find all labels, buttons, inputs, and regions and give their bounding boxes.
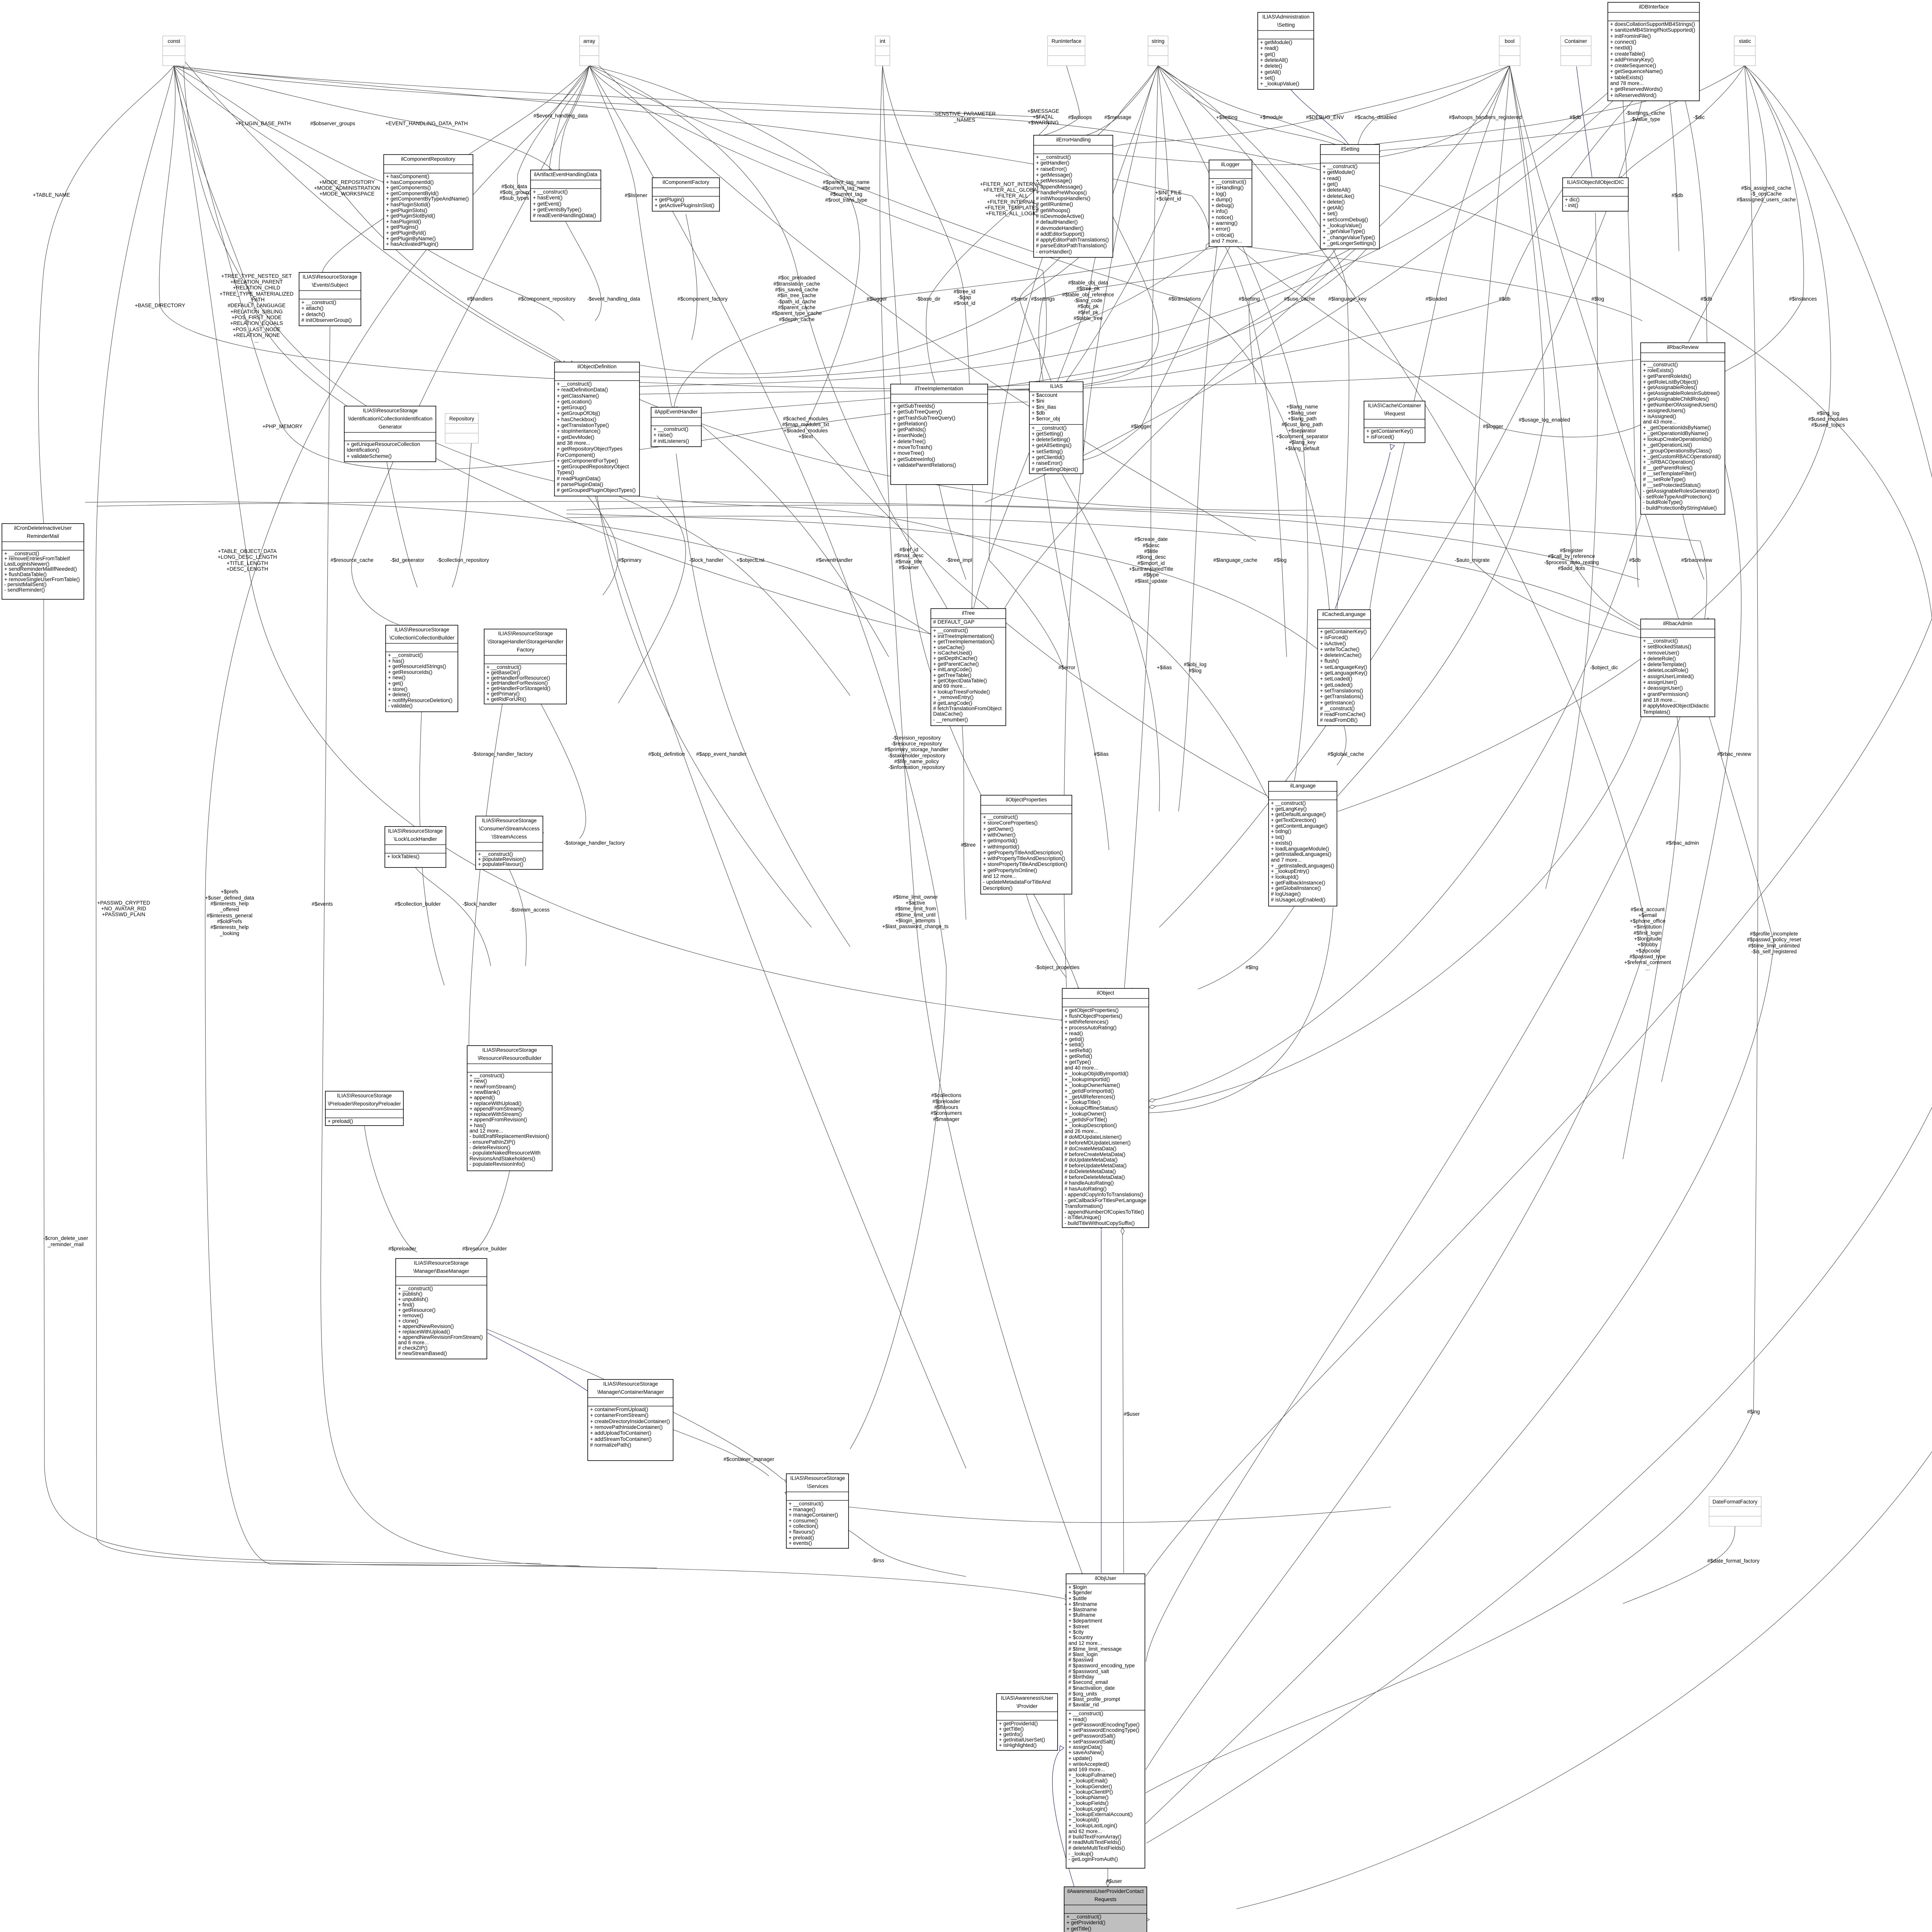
svg-text:+ getGroupOfObj(): + getGroupOfObj()	[557, 410, 600, 416]
svg-text:#$title: #$title	[1144, 548, 1158, 554]
svg-text:ilSetting: ilSetting	[1341, 146, 1359, 152]
svg-text:and 69 more...: and 69 more...	[933, 683, 967, 689]
svg-text:# devmodeHandler(): # devmodeHandler()	[1036, 225, 1083, 231]
svg-text:# $avatar_rid: # $avatar_rid	[1068, 1702, 1099, 1708]
svg-text:# parsePluginData(): # parsePluginData()	[557, 481, 603, 487]
svg-text:\Provider: \Provider	[1017, 1703, 1038, 1709]
svg-text:+ notice(): + notice()	[1211, 214, 1233, 220]
svg-text:#$is_saved_cache: #$is_saved_cache	[775, 287, 818, 293]
svg-text:- validate(): - validate()	[388, 703, 413, 709]
svg-text:+ getSequenceName(): + getSequenceName()	[1610, 68, 1663, 74]
svg-text:int: int	[880, 38, 886, 44]
svg-text:+ txtlng(): + txtlng()	[1271, 828, 1291, 834]
svg-text:+ getHandlerForStorageId(): + getHandlerForStorageId()	[486, 685, 550, 691]
svg-text:# $birthday: # $birthday	[1068, 1674, 1094, 1680]
svg-text:+ getGroupedRepositoryObject: + getGroupedRepositoryObject	[557, 464, 629, 469]
svg-text:#$add_dots: #$add_dots	[1558, 565, 1585, 571]
svg-text:+ connect(): + connect()	[1610, 39, 1636, 45]
svg-text:+ getActivePluginsInSlot(): + getActivePluginsInSlot()	[655, 202, 714, 208]
svg-text:+MODE_ADMINISTRATION: +MODE_ADMINISTRATION	[314, 185, 380, 191]
svg-text:#$parent_cache: #$parent_cache	[778, 304, 816, 310]
svg-text:ilObjectProperties: ilObjectProperties	[1006, 797, 1047, 803]
svg-text:+ _lookupFields(): + _lookupFields()	[1068, 1800, 1109, 1806]
svg-text:#$cust_lang_path: #$cust_lang_path	[1282, 422, 1323, 427]
svg-text:DateFormatFactory: DateFormatFactory	[1713, 1499, 1758, 1505]
svg-text:\Services: \Services	[807, 1483, 828, 1489]
svg-text:+ getTextDirection(): + getTextDirection()	[1271, 817, 1316, 823]
svg-text:# buildTextFromArray(): # buildTextFromArray()	[1068, 1834, 1121, 1840]
svg-text:+ getEvent(): + getEvent()	[533, 201, 561, 207]
svg-text:#$log: #$log	[1274, 557, 1286, 563]
svg-text:+ __construct(): + __construct()	[1643, 362, 1678, 367]
svg-text:+$INI_FILE: +$INI_FILE	[1155, 190, 1182, 196]
svg-text:#$file_name_policy: #$file_name_policy	[894, 759, 939, 764]
svg-text:#$depth_cache: #$depth_cache	[779, 316, 815, 322]
svg-text:+ getModule(): + getModule()	[1323, 169, 1355, 175]
svg-text:+ getTranslations(): + getTranslations()	[1320, 694, 1363, 699]
svg-text:# __construct(): # __construct()	[1320, 706, 1355, 711]
svg-text:ILIAS\ResourceStorage: ILIAS\ResourceStorage	[498, 631, 553, 636]
svg-text:+ getClassName(): + getClassName()	[557, 393, 599, 399]
svg-text:#$date_format_factory: #$date_format_factory	[1707, 1558, 1759, 1564]
svg-text:+ getSubTreeIds(): + getSubTreeIds()	[893, 403, 935, 409]
svg-text:+$lang_user: +$lang_user	[1288, 410, 1317, 416]
svg-text:# parseEditorPathTranslation(): # parseEditorPathTranslation()	[1036, 243, 1107, 248]
svg-text:+ setBlockedStatus(): + setBlockedStatus()	[1643, 644, 1691, 650]
svg-text:#$logger: #$logger	[1131, 423, 1151, 429]
svg-text:#$owner: #$owner	[899, 565, 919, 570]
svg-text:+ _getAllReferences(): + _getAllReferences()	[1065, 1094, 1115, 1100]
svg-text:#$language_key: #$language_key	[1328, 296, 1366, 302]
svg-text:+ getUniqueResourceCollection: + getUniqueResourceCollection	[347, 441, 420, 447]
svg-text:+ __construct(): + __construct()	[557, 381, 592, 387]
svg-text:- appendCopyInfoToTranslations: - appendCopyInfoToTranslations()	[1065, 1192, 1143, 1197]
svg-text:+ getObjectDataTable(): + getObjectDataTable()	[933, 678, 987, 684]
svg-text:+ _lookupObjIdByImportId(): + _lookupObjIdByImportId()	[1065, 1071, 1128, 1077]
svg-text:+ _getOperationIdByName(): + _getOperationIdByName()	[1643, 430, 1708, 436]
svg-text:-$resource_repository: -$resource_repository	[891, 741, 942, 747]
svg-text:+$hobby: +$hobby	[1638, 942, 1658, 947]
svg-text:string: string	[1151, 38, 1164, 44]
svg-text:# readFromDB(): # readFromDB()	[1320, 717, 1358, 723]
svg-text:+ deleteTree(): + deleteTree()	[893, 439, 926, 444]
svg-text:+FILTER_ALL: +FILTER_ALL	[995, 193, 1028, 199]
svg-text:+ raiseError(): + raiseError()	[1032, 460, 1063, 466]
svg-text:ilCachedLanguage: ilCachedLanguage	[1322, 611, 1366, 617]
svg-text:and 38 more...: and 38 more...	[557, 440, 590, 446]
svg-text:#$lng: #$lng	[1747, 1409, 1760, 1415]
svg-text:+ _lookupOwner(): + _lookupOwner()	[1065, 1111, 1106, 1117]
svg-text:+ containerFromUpload(): + containerFromUpload()	[590, 1406, 648, 1412]
svg-text:+ $account: + $account	[1032, 392, 1058, 398]
svg-text:- isTitleUnique(): - isTitleUnique()	[1065, 1214, 1101, 1220]
svg-text:+ read(): + read()	[1065, 1031, 1083, 1036]
svg-text:+ isHandling(): + isHandling()	[1211, 185, 1244, 190]
svg-text:+ deleteTemplate(): + deleteTemplate()	[1643, 662, 1686, 667]
svg-text:#$usage_log_enabled: #$usage_log_enabled	[1519, 417, 1570, 423]
svg-text:+$lang_default: +$lang_default	[1285, 446, 1320, 451]
svg-text:+ validateScheme(): + validateScheme()	[347, 453, 392, 459]
svg-text:+ _lookupOwnerName(): + _lookupOwnerName()	[1065, 1082, 1120, 1088]
svg-text:+ raise(): + raise()	[653, 432, 673, 438]
svg-text:#$root_id: #$root_id	[954, 300, 975, 306]
svg-text:#$register: #$register	[1560, 548, 1583, 553]
svg-text:#$preloader: #$preloader	[932, 1099, 961, 1104]
svg-text:+RELATION_NONE: +RELATION_NONE	[233, 332, 280, 338]
svg-text:+ setLoaded(): + setLoaded()	[1320, 676, 1352, 682]
svg-text:#$observer_groups: #$observer_groups	[310, 121, 355, 126]
svg-text:ILIAS\Awareness\User: ILIAS\Awareness\User	[1001, 1695, 1053, 1701]
svg-text:# readPluginData(): # readPluginData()	[557, 476, 600, 481]
svg-text:+ get(): + get()	[1323, 181, 1338, 187]
svg-text:+ getProviderId(): + getProviderId()	[1066, 1920, 1105, 1925]
svg-text:and 7 more...: and 7 more...	[1271, 857, 1302, 863]
svg-text:#$ext_account: #$ext_account	[1631, 906, 1665, 912]
svg-text:+PASSWD_CRYPTED: +PASSWD_CRYPTED	[97, 900, 150, 906]
svg-text:+ createDirectoryInsideContain: + createDirectoryInsideContainer()	[590, 1418, 670, 1424]
svg-text:+ getId(): + getId()	[1065, 1036, 1084, 1042]
svg-text:+ stopInheritance(): + stopInheritance()	[557, 428, 600, 434]
svg-text:+ withImportId(): + withImportId()	[983, 844, 1019, 850]
svg-text:ilArtifactEventHandlingData: ilArtifactEventHandlingData	[534, 172, 598, 177]
svg-text:+ $fullname: + $fullname	[1068, 1612, 1095, 1618]
svg-text:ilTreeImplementation: ilTreeImplementation	[915, 386, 963, 391]
svg-text:+DESC_LENGTH: +DESC_LENGTH	[226, 566, 268, 572]
svg-text:# normalizePath(): # normalizePath()	[590, 1442, 631, 1448]
svg-text:#$instances: #$instances	[1789, 296, 1817, 302]
svg-text:+$separator: +$separator	[1288, 428, 1316, 434]
svg-text:#$obj_pk: #$obj_pk	[1078, 303, 1099, 309]
svg-text:Identification(): Identification()	[347, 447, 379, 453]
svg-text:#$resource_cache: #$resource_cache	[330, 557, 373, 563]
svg-text:+ manage(): + manage()	[789, 1507, 815, 1512]
svg-text:+$longitude: +$longitude	[1634, 936, 1661, 942]
svg-text:#$lng_log: #$lng_log	[1817, 410, 1840, 416]
svg-text:+ appendFromRevision(): + appendFromRevision()	[469, 1117, 527, 1122]
svg-text:+ flush(): + flush()	[1320, 658, 1339, 664]
svg-text:#$current_tag_name: #$current_tag_name	[822, 185, 871, 191]
svg-text:+ setLanguageKey(): + setLanguageKey()	[1320, 664, 1367, 670]
svg-text:+ lookupCreateOperationIds(): + lookupCreateOperationIds()	[1643, 436, 1712, 442]
svg-text:+ __construct(): + __construct()	[1211, 179, 1246, 185]
svg-text:+ _isRBACOperation(): + _isRBACOperation()	[1643, 459, 1695, 465]
svg-text:Description(): Description()	[983, 885, 1013, 891]
svg-text:+ getAllSettings(): + getAllSettings()	[1032, 442, 1071, 448]
svg-text:+ store(): + store()	[388, 686, 408, 692]
svg-text:+ getComponentByTypeAndName(): + getComponentByTypeAndName()	[386, 196, 469, 202]
svg-text:ilLanguage: ilLanguage	[1290, 783, 1316, 789]
svg-text:+ set(): + set()	[1323, 211, 1338, 216]
svg-text:+ __construct(): + __construct()	[933, 628, 968, 633]
svg-text:# doUpdateMetaData(): # doUpdateMetaData()	[1065, 1157, 1117, 1163]
svg-text:#$obj_log: #$obj_log	[1184, 662, 1207, 667]
svg-text:+$referral_comment: +$referral_comment	[1624, 959, 1671, 965]
svg-text:#$db: #$db	[1499, 296, 1510, 302]
svg-text:#$oldPrefs: #$oldPrefs	[217, 918, 242, 924]
svg-text:# doMDUpdateListener(): # doMDUpdateListener()	[1065, 1134, 1122, 1140]
svg-text:# isUsageLogEnabled(): # isUsageLogEnabled()	[1271, 897, 1325, 903]
svg-text:#$log: #$log	[1189, 668, 1201, 673]
svg-text:and 12 more...: and 12 more...	[983, 873, 1017, 879]
svg-text:# DEFAULT_GAP: # DEFAULT_GAP	[933, 619, 975, 625]
svg-text:+ getResource(): + getResource()	[398, 1307, 435, 1313]
svg-text:- _lookup(): - _lookup()	[1068, 1851, 1094, 1857]
svg-text:+FILTER_ALL_GLOBAL: +FILTER_ALL_GLOBAL	[983, 187, 1040, 193]
svg-text:+ publish(): + publish()	[398, 1291, 422, 1297]
svg-text:#$cache_disabled: #$cache_disabled	[1355, 114, 1397, 120]
svg-text:# $second_email: # $second_email	[1068, 1679, 1108, 1685]
svg-text:+ __construct(): + __construct()	[1271, 800, 1306, 806]
svg-text:+ withReferences(): + withReferences()	[1065, 1019, 1109, 1025]
svg-text:+ deassignUser(): + deassignUser()	[1643, 685, 1683, 691]
svg-text:#$table_obj_reference: #$table_obj_reference	[1062, 292, 1114, 298]
svg-text:# doDeleteMetaData(): # doDeleteMetaData()	[1065, 1168, 1116, 1174]
svg-text:+ processAutoRating(): + processAutoRating()	[1065, 1025, 1117, 1031]
svg-text:+ doesCollationSupportMB4Strin: + doesCollationSupportMB4Strings()	[1610, 21, 1695, 27]
svg-text:+ update(): + update()	[1068, 1755, 1092, 1761]
svg-text:+ nextId(): + nextId()	[1610, 45, 1632, 51]
svg-text:-$storage_handler_factory: -$storage_handler_factory	[564, 840, 625, 846]
svg-text:#$current_tag: #$current_tag	[830, 191, 862, 197]
svg-text:# __setRoleType(): # __setRoleType()	[1643, 476, 1685, 482]
svg-text:+ read(): + read()	[1068, 1716, 1087, 1722]
svg-text:+ getSubTreeQuery(): + getSubTreeQuery()	[893, 409, 942, 415]
svg-text:#$obj_data: #$obj_data	[502, 184, 527, 189]
svg-text:+ readDefinitionData(): + readDefinitionData()	[557, 387, 608, 393]
svg-text:+ getSetting(): + getSetting()	[1032, 431, 1063, 437]
svg-text:\Manager\ContainerManager: \Manager\ContainerManager	[597, 1389, 664, 1395]
svg-text:#$first_login: #$first_login	[1634, 930, 1662, 936]
svg-text:+ saveAsNew(): + saveAsNew()	[1068, 1750, 1104, 1755]
svg-text:+ getPathIds(): + getPathIds()	[893, 427, 926, 432]
svg-text:# getGroupedPluginObjectTypes(: # getGroupedPluginObjectTypes()	[557, 487, 636, 493]
svg-text:-$tree_impl: -$tree_impl	[946, 557, 972, 563]
svg-text:_offered: _offered	[219, 906, 239, 912]
svg-text:\Events\Subject: \Events\Subject	[312, 282, 348, 288]
svg-text:-$value_type: -$value_type	[1630, 116, 1660, 122]
svg-text:-$collection_repository: -$collection_repository	[437, 557, 489, 563]
svg-text:+$comment_separator: +$comment_separator	[1276, 434, 1328, 439]
svg-text:+ deleteLike(): + deleteLike()	[1323, 193, 1354, 199]
svg-text:+ lookupTreesForNode(): + lookupTreesForNode()	[933, 689, 990, 695]
svg-text:+ getBaseDir(): + getBaseDir()	[486, 670, 520, 675]
svg-text:+ _lookupEmail(): + _lookupEmail()	[1068, 1778, 1108, 1784]
svg-text:# $org_units: # $org_units	[1068, 1691, 1097, 1697]
svg-text:# initListeners(): # initListeners()	[653, 438, 689, 444]
svg-text:#$used_modules: #$used_modules	[1808, 416, 1848, 422]
svg-text:+ __construct(): + __construct()	[486, 664, 521, 670]
svg-text:# __setTemplateFilter(): # __setTemplateFilter()	[1643, 471, 1696, 476]
svg-text:+ $ini_ilias: + $ini_ilias	[1032, 404, 1056, 410]
svg-text:ilLogger: ilLogger	[1221, 162, 1240, 167]
svg-text:...: ...	[1645, 966, 1650, 971]
svg-text:+ addPrimaryKey(): + addPrimaryKey()	[1610, 57, 1654, 63]
svg-text:ILIAS\ResourceStorage: ILIAS\ResourceStorage	[303, 274, 357, 280]
svg-text:+ _lookupTitle(): + _lookupTitle()	[1065, 1099, 1100, 1105]
svg-text:+ removeUser(): + removeUser()	[1643, 650, 1679, 656]
svg-text:-$cron_delete_user: -$cron_delete_user	[43, 1235, 88, 1241]
svg-text:Transformation(): Transformation()	[1065, 1203, 1103, 1209]
svg-text:static: static	[1739, 38, 1751, 44]
svg-text:+ delete(): + delete()	[1323, 199, 1345, 205]
svg-text:+ getContainerKey(): + getContainerKey()	[1320, 629, 1367, 634]
svg-text:#$language_cache: #$language_cache	[1213, 557, 1257, 563]
svg-text:- buildTitleWithoutCopySuffix(: - buildTitleWithoutCopySuffix()	[1065, 1220, 1135, 1226]
svg-text:+ flushObjectProperties(): + flushObjectProperties()	[1065, 1013, 1122, 1019]
svg-text:#$lng: #$lng	[1245, 964, 1258, 970]
svg-text:+ assignUser(): + assignUser()	[1643, 679, 1677, 685]
svg-text:+ addStreamToContainer(): + addStreamToContainer()	[590, 1436, 651, 1442]
svg-text:#$import_id: #$import_id	[1138, 560, 1165, 566]
svg-text:+ getResourceIds(): + getResourceIds()	[388, 669, 432, 675]
svg-text:+ getPasswordSalt(): + getPasswordSalt()	[1068, 1733, 1116, 1739]
svg-text:-$path_id_cache: -$path_id_cache	[777, 299, 816, 304]
svg-text:#$parent_tag_name: #$parent_tag_name	[823, 179, 870, 185]
svg-text:ILIAS\ResourceStorage: ILIAS\ResourceStorage	[603, 1381, 658, 1387]
svg-text:-$information_repository: -$information_repository	[888, 764, 945, 770]
svg-text:ilComponentRepository: ilComponentRepository	[401, 156, 456, 162]
svg-text:+ sanitizeMB4StringIfNotSuppor: + sanitizeMB4StringIfNotSupported()	[1610, 27, 1695, 33]
svg-text:and 78 more...: and 78 more...	[1610, 80, 1644, 86]
svg-text:- init(): - init()	[1565, 202, 1578, 208]
svg-text:#$interests_help: #$interests_help	[210, 901, 248, 906]
svg-text:Factory: Factory	[517, 647, 534, 653]
svg-text:#$cached_modules: #$cached_modules	[783, 416, 828, 422]
svg-text:+ clone(): + clone()	[398, 1318, 418, 1324]
svg-text:+ remove(): + remove()	[398, 1313, 423, 1318]
svg-text:# doCreateMetaData(): # doCreateMetaData()	[1065, 1146, 1116, 1151]
svg-text:-$id_generator: -$id_generator	[390, 557, 424, 563]
svg-text:+ dump(): + dump()	[1211, 197, 1232, 202]
svg-text:_NAMES: _NAMES	[953, 117, 975, 123]
svg-text:+ getHandler(): + getHandler()	[1036, 160, 1070, 166]
svg-text:+ grantPermission(): + grantPermission()	[1643, 691, 1689, 697]
svg-text:#$manager: #$manager	[933, 1116, 960, 1122]
svg-text:- getAssignableRolesGenerator(: - getAssignableRolesGenerator()	[1643, 488, 1719, 494]
svg-text:+ preload(): + preload()	[789, 1535, 814, 1541]
svg-text:+$WARNING: +$WARNING	[1028, 120, 1059, 126]
svg-text:-$lang_code: -$lang_code	[1074, 298, 1102, 303]
svg-text:+ deleteSetting(): + deleteSetting()	[1032, 437, 1070, 442]
svg-text:#$collection_builder: #$collection_builder	[395, 901, 441, 907]
svg-text:+ get(): + get()	[1260, 51, 1275, 57]
svg-text:# defaultHandler(): # defaultHandler()	[1036, 219, 1078, 225]
svg-text:-$settings_cache: -$settings_cache	[1626, 110, 1665, 116]
svg-text:+$MESSAGE: +$MESSAGE	[1027, 108, 1059, 114]
svg-text:Types(): Types()	[557, 469, 574, 475]
svg-text:+ isForced(): + isForced()	[1366, 434, 1394, 440]
svg-text:+ txt(): + txt()	[1271, 834, 1284, 840]
svg-text:+$institution: +$institution	[1634, 924, 1662, 930]
svg-text:\Setting: \Setting	[1277, 22, 1295, 28]
svg-text:# checkZIP(): # checkZIP()	[398, 1345, 428, 1351]
svg-text:RevisionsAndStakeholders(): RevisionsAndStakeholders()	[469, 1156, 535, 1162]
svg-text:+ events(): + events()	[789, 1540, 812, 1546]
svg-text:+ _lookupFullname(): + _lookupFullname()	[1068, 1772, 1116, 1778]
svg-text:+ getSubtreeInfo(): + getSubtreeInfo()	[893, 456, 935, 462]
svg-text:and 169 more...: and 169 more...	[1068, 1767, 1105, 1772]
svg-text:+ moveToTrash(): + moveToTrash()	[893, 444, 932, 450]
svg-text:and 43 more...: and 43 more...	[1643, 419, 1677, 425]
svg-text:+ getTitle(): + getTitle()	[1066, 1926, 1091, 1932]
svg-text:+POS_FIRST_NODE: +POS_FIRST_NODE	[231, 315, 281, 320]
svg-text:- populateNakedResourceWith: - populateNakedResourceWith	[469, 1150, 541, 1156]
svg-text:and 12 more...: and 12 more...	[469, 1128, 503, 1134]
svg-text:+ __construct(): + __construct()	[983, 814, 1018, 820]
svg-text:# $time_limit_message: # $time_limit_message	[1068, 1646, 1122, 1652]
svg-text:+ set(): + set()	[1260, 75, 1275, 81]
svg-text:ilAppEventHandler: ilAppEventHandler	[655, 409, 698, 415]
svg-text:#$translations: #$translations	[1168, 296, 1201, 302]
svg-text:+RELATION_EQUALS: +RELATION_EQUALS	[230, 320, 283, 326]
svg-text:+ __construct(): + __construct()	[1643, 638, 1678, 644]
svg-text:+ getParentCache(): + getParentCache()	[933, 661, 979, 667]
svg-text:+ getComponentForType(): + getComponentForType()	[557, 458, 618, 464]
svg-text:#DEFAULT_LANGUAGE: #DEFAULT_LANGUAGE	[228, 303, 286, 308]
svg-text:+ getInstalledLanguages(): + getInstalledLanguages()	[1271, 851, 1332, 857]
svg-text:_reminder_mail: _reminder_mail	[47, 1242, 83, 1247]
svg-text:# getLangCode(): # getLangCode()	[933, 700, 972, 706]
svg-text:# getWhoops(): # getWhoops()	[1036, 207, 1070, 213]
svg-text:#$time_limit_until: #$time_limit_until	[895, 912, 935, 918]
svg-text:+ _lookupLogin(): + _lookupLogin()	[1068, 1806, 1107, 1812]
svg-text:+ hasComponentId(): + hasComponentId()	[386, 179, 434, 185]
svg-text:+ $street: + $street	[1068, 1624, 1089, 1629]
svg-text:-$gap: -$gap	[958, 294, 971, 300]
svg-text:#$ref_id: #$ref_id	[900, 547, 918, 553]
svg-text:+ consume(): + consume()	[789, 1518, 818, 1524]
svg-text:ILIAS\ResourceStorage: ILIAS\ResourceStorage	[388, 828, 443, 834]
svg-text:- setRoleTypeAndProtection(): - setRoleTypeAndProtection()	[1643, 494, 1711, 500]
svg-text:#$message: #$message	[1104, 114, 1131, 120]
svg-text:# initWhoopsHandlers(): # initWhoopsHandlers()	[1036, 196, 1090, 201]
svg-text:#$tree: #$tree	[961, 842, 976, 848]
svg-text:+ getTreeImplementation(): + getTreeImplementation()	[933, 639, 995, 645]
svg-text:+ _lookupExternalAccount(): + _lookupExternalAccount()	[1068, 1811, 1133, 1817]
svg-text:+ getLocation(): + getLocation()	[557, 399, 592, 405]
svg-text:# readMultiTextFields(): # readMultiTextFields()	[1068, 1839, 1121, 1845]
svg-text:#$long_desc: #$long_desc	[1136, 554, 1166, 560]
svg-text:+ getLangKey(): + getLangKey()	[1271, 806, 1307, 812]
svg-text:+$active: +$active	[906, 900, 925, 906]
svg-text:+$login_attempts: +$login_attempts	[895, 918, 935, 923]
svg-text:Container: Container	[1565, 38, 1587, 44]
svg-text:ForComponent(): ForComponent()	[557, 452, 595, 458]
svg-text:+ sendReminderMailIfNeeded(): + sendReminderMailIfNeeded()	[4, 566, 77, 572]
svg-text:# addEditorSupport(): # addEditorSupport()	[1036, 231, 1084, 237]
svg-text:+TREE_TYPE_MATERIALIZED: +TREE_TYPE_MATERIALIZED	[219, 291, 294, 297]
svg-text:\Consumer\StreamAccess: \Consumer\StreamAccess	[479, 826, 540, 832]
svg-text:+ assignData(): + assignData()	[1068, 1744, 1102, 1750]
svg-text:+ new(): + new()	[469, 1078, 487, 1084]
svg-text:#$call_by_reference: #$call_by_reference	[1548, 553, 1595, 559]
svg-text:#$primary_storage_handler: #$primary_storage_handler	[884, 747, 949, 752]
svg-text:#$container_manager: #$container_manager	[723, 1456, 774, 1462]
svg-text:+ __construct(): + __construct()	[388, 652, 423, 658]
svg-text:+ appendNewRevision(): + appendNewRevision()	[398, 1323, 454, 1329]
svg-text:+ has(): + has()	[469, 1122, 486, 1128]
svg-text:+ append(): + append()	[469, 1095, 495, 1100]
svg-text:+ getComponentById(): + getComponentById()	[386, 190, 439, 196]
svg-text:+ getRidForURI(): + getRidForURI()	[486, 696, 526, 702]
svg-text:+ notififyResourceDeletion(): + notififyResourceDeletion()	[388, 697, 452, 703]
svg-text:#$listener: #$listener	[625, 192, 648, 198]
svg-text:+ _getOperationList(): + _getOperationList()	[1643, 442, 1692, 448]
svg-text:+ getRepositoryObjectTypes: + getRepositoryObjectTypes	[557, 446, 622, 452]
svg-text:+ info(): + info()	[1211, 208, 1228, 214]
svg-text:+ getModule(): + getModule()	[1260, 39, 1293, 45]
svg-text:+ _lookupLastLogin(): + _lookupLastLogin()	[1068, 1823, 1117, 1828]
